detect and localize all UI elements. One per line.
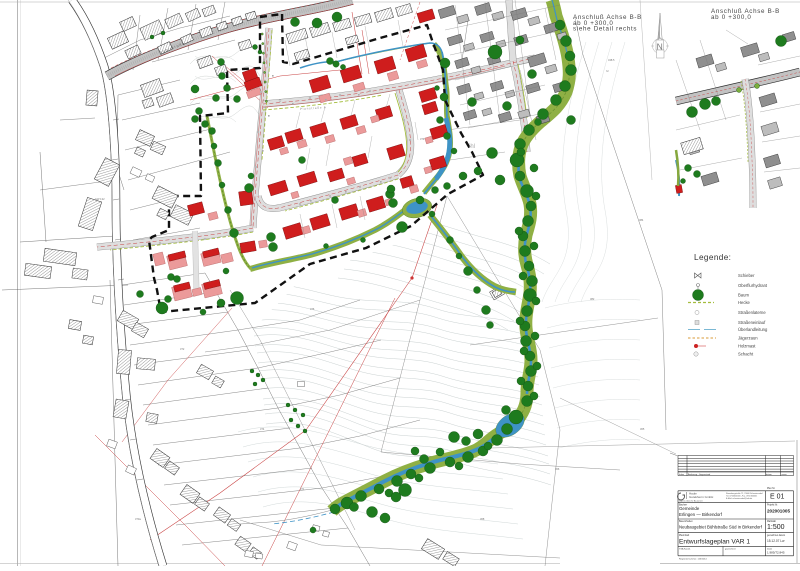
svg-text:Jägerzaun: Jägerzaun xyxy=(738,336,758,341)
svg-text:Planinhalt: Planinhalt xyxy=(679,534,689,537)
svg-text:374: 374 xyxy=(260,427,265,431)
svg-text:379: 379 xyxy=(420,137,425,141)
svg-text:Baum: Baum xyxy=(738,293,749,298)
svg-text:Bauvorhaben: Bauvorhaben xyxy=(679,520,693,523)
svg-text:368: 368 xyxy=(480,517,485,521)
svg-text:370a: 370a xyxy=(135,517,141,521)
svg-text:Änderung - Gegenstand: Änderung - Gegenstand xyxy=(688,473,711,476)
svg-text:Holzmast: Holzmast xyxy=(738,344,756,349)
svg-text:Oberflurhydrant: Oberflurhydrant xyxy=(738,283,768,288)
svg-text:Projekt Nr.: Projekt Nr. xyxy=(767,504,778,507)
svg-text:E-Mail: schwetzendorf@info.de: E-Mail: schwetzendorf@info.de xyxy=(726,497,752,500)
svg-text:Legende:: Legende: xyxy=(694,253,731,262)
svg-text:gezeichnet datum: gezeichnet datum xyxy=(767,534,785,537)
svg-text:gezeichnet: gezeichnet xyxy=(725,547,736,550)
svg-text:348.5: 348.5 xyxy=(608,58,615,62)
svg-text:372: 372 xyxy=(180,347,185,351)
svg-text:ihl: ihl xyxy=(469,144,475,150)
svg-text:TGA Koord.: TGA Koord. xyxy=(679,547,691,550)
svg-text:Entwurfslageplan VAR 1: Entwurfslageplan VAR 1 xyxy=(679,539,750,546)
svg-text:name: name xyxy=(782,474,788,476)
svg-text:GW 132: GW 132 xyxy=(95,197,105,201)
svg-text:Schacht: Schacht xyxy=(738,352,754,357)
svg-text:Gutekherm GmbH: Gutekherm GmbH xyxy=(689,495,713,499)
svg-text:Neubaugebiet Bühlstraße Süd in: Neubaugebiet Bühlstraße Süd in Birkendor… xyxy=(679,524,763,529)
svg-text:Ingenieurbüro für Bauwesen: Ingenieurbüro für Bauwesen xyxy=(679,500,703,503)
svg-text:Erlingen — Birkendorf: Erlingen — Birkendorf xyxy=(679,512,723,517)
svg-text:Gemeinde: Gemeinde xyxy=(679,506,700,511)
svg-text:Schieber: Schieber xyxy=(738,273,755,278)
svg-text:1:500: 1:500 xyxy=(767,524,785,531)
svg-text:Überlandleitung: Überlandleitung xyxy=(738,327,768,332)
svg-text:datum: datum xyxy=(766,473,772,476)
svg-text:N: N xyxy=(657,42,663,52)
svg-text:1.985/72.845: 1.985/72.845 xyxy=(767,550,785,554)
svg-text:382: 382 xyxy=(590,297,595,301)
svg-text:371: 371 xyxy=(300,487,305,491)
svg-text:Hecke: Hecke xyxy=(738,300,751,305)
svg-text:siehe Detail rechts: siehe Detail rechts xyxy=(573,26,637,33)
svg-text:ab 0 +300,0: ab 0 +300,0 xyxy=(711,14,752,21)
svg-text:E 01: E 01 xyxy=(770,493,785,500)
svg-text:Straßenlaterne: Straßenlaterne xyxy=(738,310,766,315)
svg-text:377: 377 xyxy=(230,87,235,91)
svg-text:202001005: 202001005 xyxy=(767,509,790,514)
svg-text:365: 365 xyxy=(640,427,645,431)
svg-text:376: 376 xyxy=(310,307,315,311)
svg-text:15.12.07 Lw: 15.12.07 Lw xyxy=(767,539,785,543)
svg-text:384: 384 xyxy=(639,218,644,222)
svg-text:Plan Nr.: Plan Nr. xyxy=(767,487,776,490)
svg-text:Straßeneinlauf: Straßeneinlauf xyxy=(738,320,766,325)
svg-text:Maßstab: Maßstab xyxy=(767,520,777,523)
svg-text:Registriernummer. 123/2014: Registriernummer. 123/2014 xyxy=(679,557,707,560)
svg-text:366: 366 xyxy=(555,467,560,471)
